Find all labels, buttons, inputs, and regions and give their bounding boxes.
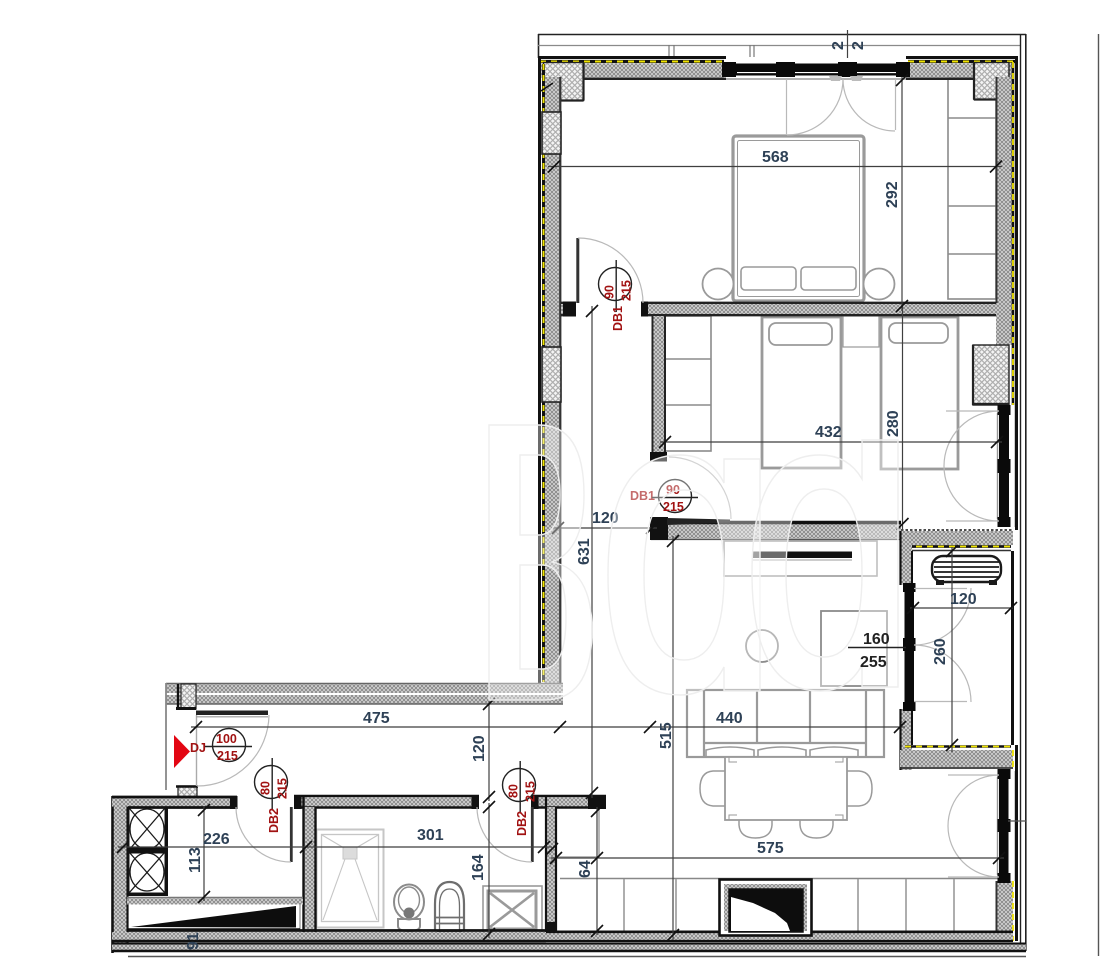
- svg-text:2: 2: [850, 41, 867, 50]
- svg-text:90: 90: [603, 285, 617, 299]
- svg-text:91: 91: [185, 932, 202, 950]
- svg-text:160: 160: [863, 631, 890, 648]
- svg-text:280: 280: [885, 410, 902, 437]
- svg-text:575: 575: [757, 840, 784, 857]
- svg-text:80: 80: [259, 781, 273, 795]
- svg-text:226: 226: [203, 831, 230, 848]
- svg-text:292: 292: [884, 181, 901, 208]
- svg-text:568: 568: [762, 149, 789, 166]
- svg-text:215: 215: [217, 749, 238, 763]
- svg-text:215: 215: [276, 778, 290, 799]
- svg-text:164: 164: [470, 854, 487, 881]
- svg-text:440: 440: [716, 710, 743, 727]
- svg-text:475: 475: [363, 710, 390, 727]
- svg-text:260: 260: [932, 638, 949, 665]
- svg-text:64: 64: [577, 860, 594, 878]
- svg-text:100: 100: [216, 732, 237, 746]
- svg-text:2: 2: [830, 41, 847, 50]
- svg-text:301: 301: [417, 827, 444, 844]
- svg-text:215: 215: [524, 781, 538, 802]
- svg-text:DB2: DB2: [515, 811, 529, 836]
- svg-text:DJ: DJ: [190, 741, 206, 755]
- svg-text:215: 215: [663, 500, 684, 514]
- svg-text:432: 432: [815, 424, 842, 441]
- svg-text:215: 215: [620, 280, 634, 301]
- svg-text:DB1: DB1: [611, 306, 625, 331]
- svg-text:631: 631: [576, 538, 593, 565]
- svg-text:DB2: DB2: [267, 808, 281, 833]
- svg-text:120: 120: [471, 735, 488, 762]
- svg-text:113: 113: [187, 847, 204, 873]
- svg-text:120: 120: [950, 591, 977, 608]
- svg-text:255: 255: [860, 654, 887, 671]
- svg-text:515: 515: [658, 722, 675, 749]
- svg-text:80: 80: [507, 784, 521, 798]
